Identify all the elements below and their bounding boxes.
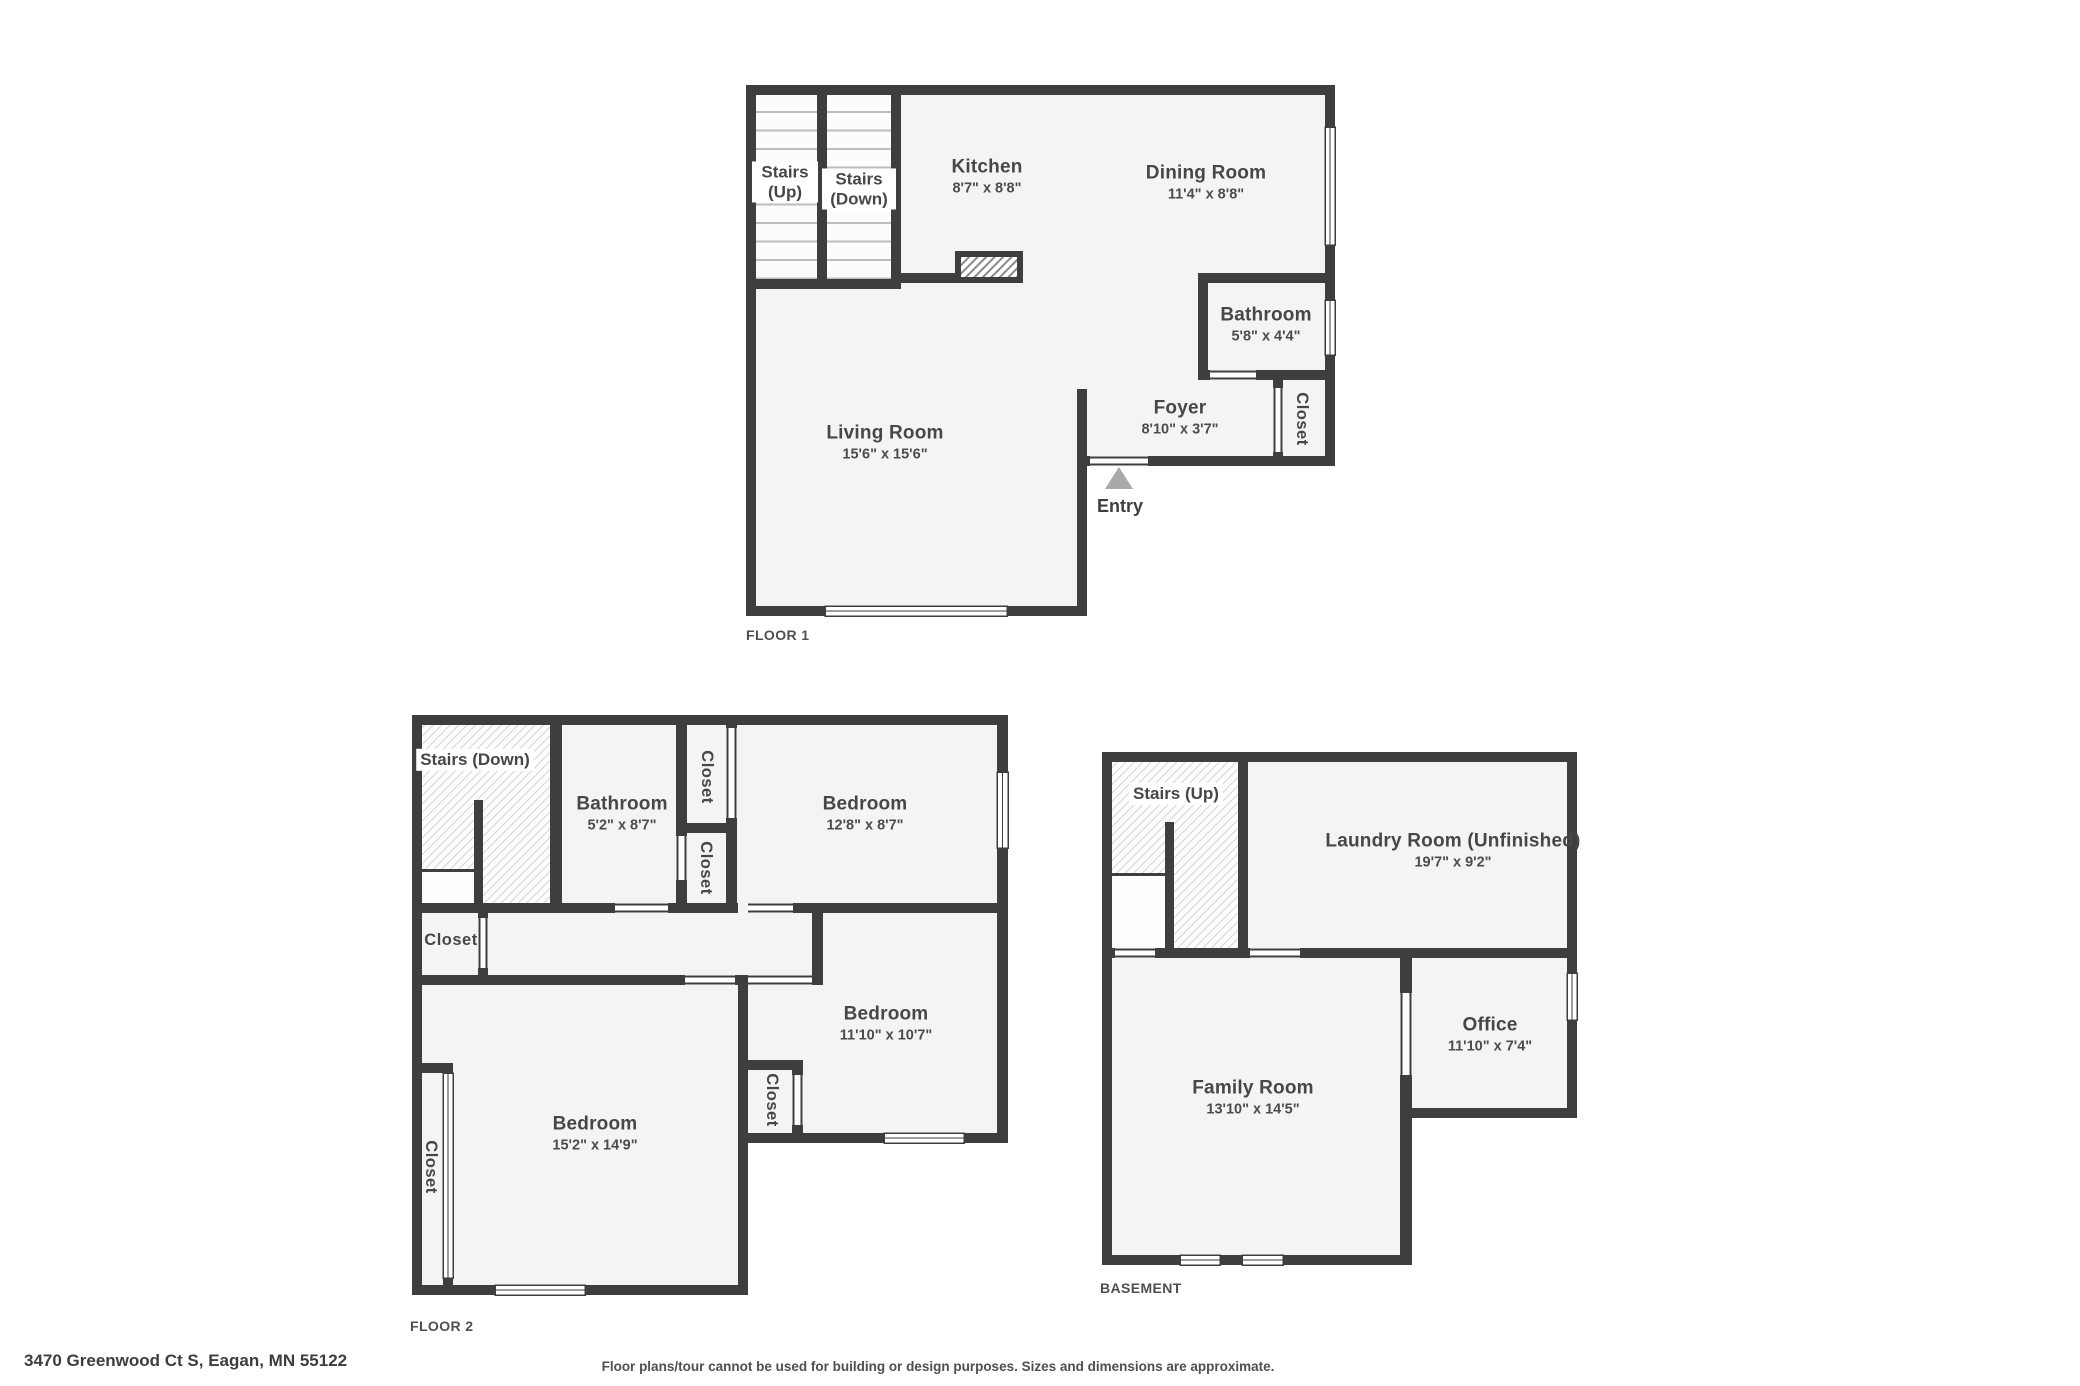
floor2-closet-upper-label: Closet bbox=[696, 750, 716, 803]
room-dims: 12'8" x 8'7" bbox=[823, 817, 908, 834]
basement-stairs-up-label: Stairs (Up) bbox=[1129, 783, 1223, 805]
floor2-bedroom2-label: Bedroom 11'10" x 10'7" bbox=[840, 1003, 932, 1044]
floor1-entry-label: Entry bbox=[1097, 496, 1143, 518]
room-name: Bedroom bbox=[840, 1003, 932, 1026]
room-name: Laundry Room (Unfinished) bbox=[1325, 830, 1580, 853]
room-dims: 19'7" x 9'2" bbox=[1325, 854, 1580, 871]
floor1-closet-label: Closet bbox=[1291, 392, 1311, 445]
room-name: Bedroom bbox=[552, 1113, 637, 1136]
room-dims: 15'6" x 15'6" bbox=[826, 446, 943, 463]
basement-plan bbox=[1102, 752, 1577, 1265]
floor1-title: FLOOR 1 bbox=[746, 627, 809, 643]
floor2-hall-closet-label: Closet bbox=[424, 931, 477, 951]
floor1-foyer-label: Foyer 8'10" x 3'7" bbox=[1141, 397, 1218, 438]
basement-laundry-label: Laundry Room (Unfinished) 19'7" x 9'2" bbox=[1325, 830, 1580, 871]
floor1-bathroom-label: Bathroom 5'8" x 4'4" bbox=[1220, 304, 1311, 345]
basement-family-room-label: Family Room 13'10" x 14'5" bbox=[1192, 1077, 1314, 1118]
floor1-dining-room-label: Dining Room 11'4" x 8'8" bbox=[1146, 162, 1266, 203]
basement-office-label: Office 11'10" x 7'4" bbox=[1448, 1014, 1532, 1055]
room-dims: 11'4" x 8'8" bbox=[1146, 186, 1266, 203]
entry-arrow-icon bbox=[1105, 467, 1133, 489]
floor2-bedroom3-closet-label: Closet bbox=[420, 1140, 440, 1193]
floor1-stairs-up-label: Stairs (Up) bbox=[752, 161, 818, 202]
room-dims: 8'10" x 3'7" bbox=[1141, 421, 1218, 438]
floor1-kitchen-label: Kitchen 8'7" x 8'8" bbox=[951, 156, 1022, 197]
room-name: Kitchen bbox=[951, 156, 1022, 179]
room-dims: 5'8" x 4'4" bbox=[1220, 328, 1311, 345]
floor2-stairs-down-label: Stairs (Down) bbox=[416, 749, 534, 771]
basement-title: BASEMENT bbox=[1100, 1280, 1182, 1296]
room-name: Living Room bbox=[826, 422, 943, 445]
floor2-title: FLOOR 2 bbox=[410, 1318, 473, 1334]
room-dims: 5'2" x 8'7" bbox=[576, 817, 667, 834]
room-dims: 11'10" x 7'4" bbox=[1448, 1038, 1532, 1055]
floorplan-drawing bbox=[0, 0, 2080, 1386]
floor2-closet-lower-label: Closet bbox=[695, 841, 715, 894]
property-address: 3470 Greenwood Ct S, Eagan, MN 55122 bbox=[24, 1351, 347, 1371]
floor1-living-room-label: Living Room 15'6" x 15'6" bbox=[826, 422, 943, 463]
room-dims: 15'2" x 14'9" bbox=[552, 1137, 637, 1154]
disclaimer-text: Floor plans/tour cannot be used for buil… bbox=[602, 1359, 1275, 1374]
room-name: Bedroom bbox=[823, 793, 908, 816]
floor1-stairs-down-label: Stairs (Down) bbox=[822, 168, 896, 209]
room-name: Dining Room bbox=[1146, 162, 1266, 185]
kitchen-counter-passthrough bbox=[955, 251, 1023, 283]
room-dims: 11'10" x 10'7" bbox=[840, 1027, 932, 1044]
floor2-bedroom1-label: Bedroom 12'8" x 8'7" bbox=[823, 793, 908, 834]
room-name: Office bbox=[1448, 1014, 1532, 1037]
room-name: Foyer bbox=[1141, 397, 1218, 420]
room-name: Family Room bbox=[1192, 1077, 1314, 1100]
room-name: Bathroom bbox=[576, 793, 667, 816]
floorplan-sheet: Stairs (Up) Stairs (Down) Kitchen 8'7" x… bbox=[0, 0, 2080, 1386]
room-name: Bathroom bbox=[1220, 304, 1311, 327]
floor2-bathroom-label: Bathroom 5'2" x 8'7" bbox=[576, 793, 667, 834]
floor2-bedroom3-label: Bedroom 15'2" x 14'9" bbox=[552, 1113, 637, 1154]
room-dims: 8'7" x 8'8" bbox=[951, 180, 1022, 197]
floor2-bedroom2-closet-label: Closet bbox=[761, 1073, 781, 1126]
room-dims: 13'10" x 14'5" bbox=[1192, 1101, 1314, 1118]
